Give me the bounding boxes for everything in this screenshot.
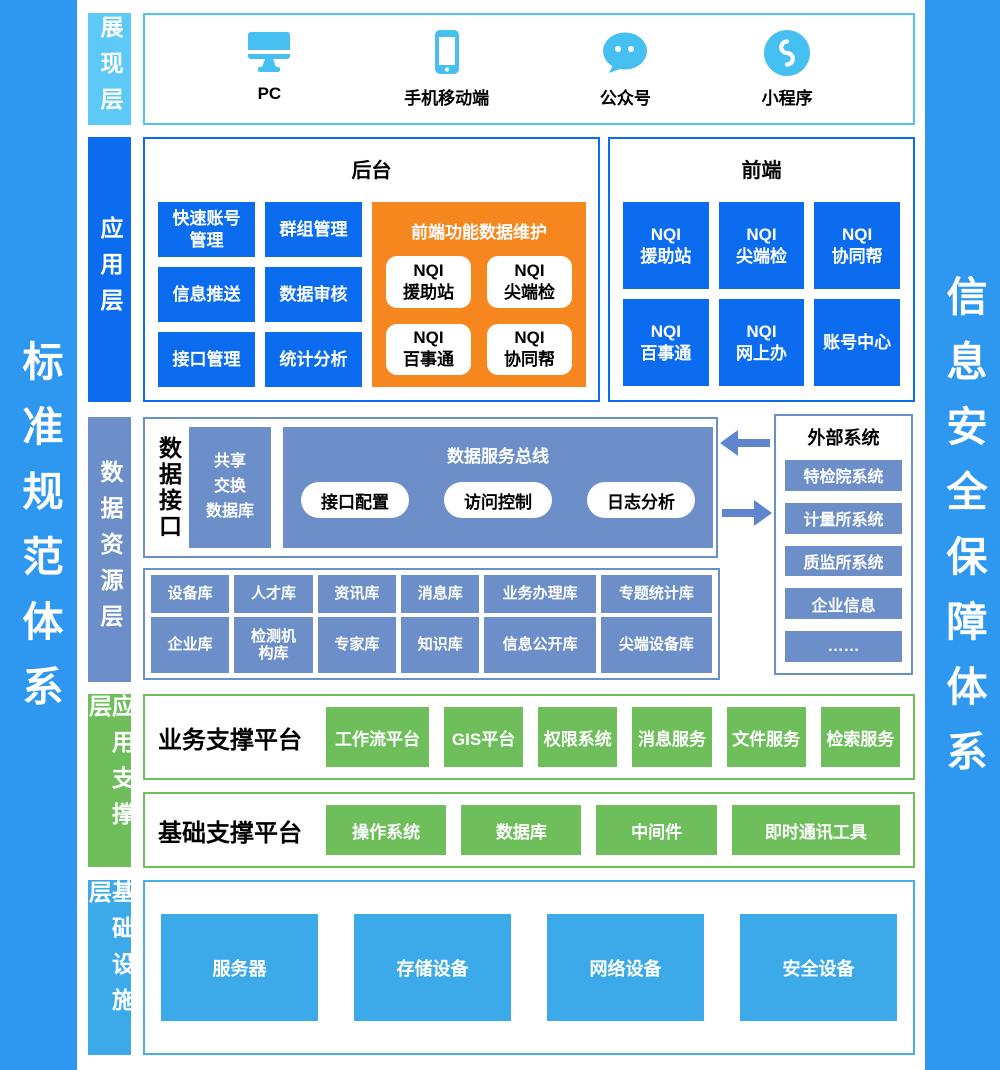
support-button: 消息服务 [632,707,711,767]
frontend-title: 前端 [610,154,913,183]
database-cell: 人才库 [234,575,312,613]
presentation-item-label: 手机移动端 [404,84,489,109]
official-account-icon [600,28,650,76]
data-interface-box: 数据接口 共享 交换 数据库 数据服务总线 接口配置 访问控制 日志分析 [143,417,718,558]
exchange-arrows [720,428,772,528]
backend-button: 统计分析 [265,332,362,387]
database-cell: 尖端设备库 [601,617,712,673]
layer-label-infrastructure-text: 基础设施层 [87,880,133,1055]
databases-row-2: 企业库 检测机 构库 专家库 知识库 信息公开库 尖端设备库 [151,617,712,673]
backend-box: 后台 快速账号 管理 群组管理 信息推送 数据审核 接口管理 统计分析 前端功能… [143,137,600,402]
backend-button-grid: 快速账号 管理 群组管理 信息推送 数据审核 接口管理 统计分析 [158,202,362,387]
infrastructure-item: 服务器 [161,914,318,1021]
layer-label-presentation: 展现层 [88,13,131,125]
database-cell: 消息库 [401,575,479,613]
data-interface-title: 数据接口 [157,436,180,540]
layer-label-application: 应用层 [88,137,131,402]
architecture-diagram: 标准规范体系 信息安全保障体系 展现层 PC [0,0,1000,1070]
frontend-button: NQI 百事通 [623,299,709,386]
business-support-title: 业务支撑平台 [158,720,310,755]
infrastructure-box: 服务器 存储设备 网络设备 安全设备 [143,880,915,1055]
data-service-bus: 数据服务总线 接口配置 访问控制 日志分析 [283,427,713,548]
backend-button: 信息推送 [158,267,255,322]
external-systems-box: 外部系统 特检院系统 计量所系统 质监所系统 企业信息 …… [774,414,913,675]
bus-pill: 日志分析 [587,482,695,518]
presentation-item-pc: PC [245,28,293,104]
support-button: 即时通讯工具 [732,805,900,855]
layer-label-presentation-text: 展现层 [98,15,121,123]
frontend-data-maintenance-panel: 前端功能数据维护 NQI 援助站 NQI 尖端检 NQI 百事通 NQI 协同帮 [372,202,586,387]
external-system-item: 特检院系统 [785,460,902,491]
external-system-item: 计量所系统 [785,503,902,534]
support-button: 文件服务 [727,707,806,767]
layer-label-application-text: 应用层 [98,216,121,324]
database-cell: 设备库 [151,575,229,613]
maintenance-card: NQI 援助站 [386,256,471,308]
support-button: 中间件 [596,805,716,855]
external-systems-list: 特检院系统 计量所系统 质监所系统 企业信息 …… [785,460,902,662]
maintenance-card: NQI 协同帮 [487,324,572,376]
phone-icon [432,28,462,76]
database-cell: 专题统计库 [601,575,712,613]
bus-pill: 访问控制 [444,482,552,518]
support-button: 数据库 [461,805,581,855]
arrow-right-icon [722,500,772,526]
maintenance-card: NQI 尖端检 [487,256,572,308]
backend-title: 后台 [145,154,598,183]
database-cell: 知识库 [401,617,479,673]
database-cell: 检测机 构库 [234,617,312,673]
arrow-left-icon [720,430,770,456]
backend-button: 数据审核 [265,267,362,322]
frontend-button: 账号中心 [814,299,900,386]
base-support-box: 基础支撑平台 操作系统 数据库 中间件 即时通讯工具 [143,792,915,868]
layer-label-app-support: 应用支撑层 [88,694,131,867]
presentation-box: PC 手机移动端 公众号 [143,13,915,125]
right-banner-text: 信息安全保障体系 [942,275,983,795]
left-banner: 标准规范体系 [0,0,77,1070]
external-systems-title: 外部系统 [785,424,902,450]
presentation-item-label: 小程序 [762,84,813,109]
support-button: 工作流平台 [326,707,429,767]
database-cell: 业务办理库 [484,575,595,613]
desktop-icon [245,28,293,76]
base-support-title: 基础支撑平台 [158,813,310,848]
maintenance-card-grid: NQI 援助站 NQI 尖端检 NQI 百事通 NQI 协同帮 [380,256,578,375]
database-cell: 资讯库 [318,575,396,613]
base-support-buttons: 操作系统 数据库 中间件 即时通讯工具 [326,805,900,855]
support-button: 检索服务 [821,707,900,767]
external-system-item: …… [785,631,902,662]
left-banner-text: 标准规范体系 [18,340,59,730]
support-button: GIS平台 [444,707,523,767]
frontend-button: NQI 网上办 [719,299,805,386]
presentation-item-mobile: 手机移动端 [404,28,489,109]
database-cell: 专家库 [318,617,396,673]
database-cell: 企业库 [151,617,229,673]
right-banner: 信息安全保障体系 [925,0,1000,1070]
bus-pill: 接口配置 [301,482,409,518]
presentation-item-label: PC [258,84,282,104]
frontend-button: NQI 尖端检 [719,202,805,289]
business-support-box: 业务支撑平台 工作流平台 GIS平台 权限系统 消息服务 文件服务 检索服务 [143,694,915,780]
maintenance-card: NQI 百事通 [386,324,471,376]
layer-label-data-resource: 数据资源层 [88,417,131,682]
infrastructure-item: 存储设备 [354,914,511,1021]
frontend-button: NQI 协同帮 [814,202,900,289]
bus-pill-row: 接口配置 访问控制 日志分析 [283,482,713,518]
presentation-item-official-account: 公众号 [600,28,651,109]
frontend-box: 前端 NQI 援助站 NQI 尖端检 NQI 协同帮 NQI 百事通 NQI 网… [608,137,915,402]
database-cell: 信息公开库 [484,617,595,673]
layer-label-data-resource-text: 数据资源层 [98,460,121,640]
support-button: 操作系统 [326,805,446,855]
backend-body: 快速账号 管理 群组管理 信息推送 数据审核 接口管理 统计分析 前端功能数据维… [158,202,586,387]
external-system-item: 企业信息 [785,588,902,619]
business-support-buttons: 工作流平台 GIS平台 权限系统 消息服务 文件服务 检索服务 [326,707,900,767]
presentation-item-mini-program: 小程序 [762,28,813,109]
infrastructure-item: 安全设备 [740,914,897,1021]
layer-label-app-support-text: 应用支撑层 [87,694,133,867]
backend-button: 快速账号 管理 [158,202,255,257]
infrastructure-item: 网络设备 [547,914,704,1021]
layer-label-infrastructure: 基础设施层 [88,880,131,1055]
support-button: 权限系统 [538,707,617,767]
maintenance-title: 前端功能数据维护 [380,218,578,243]
data-service-bus-title: 数据服务总线 [283,442,713,467]
presentation-item-label: 公众号 [600,84,651,109]
external-system-item: 质监所系统 [785,546,902,577]
backend-button: 群组管理 [265,202,362,257]
data-interface-title-wrap: 数据接口 [151,419,185,556]
mini-program-icon [764,28,810,76]
databases-row-1: 设备库 人才库 资讯库 消息库 业务办理库 专题统计库 [151,575,712,613]
frontend-button-grid: NQI 援助站 NQI 尖端检 NQI 协同帮 NQI 百事通 NQI 网上办 … [623,202,900,386]
backend-button: 接口管理 [158,332,255,387]
databases-box: 设备库 人才库 资讯库 消息库 业务办理库 专题统计库 企业库 检测机 构库 专… [143,568,720,680]
frontend-button: NQI 援助站 [623,202,709,289]
share-exchange-database: 共享 交换 数据库 [189,427,271,548]
